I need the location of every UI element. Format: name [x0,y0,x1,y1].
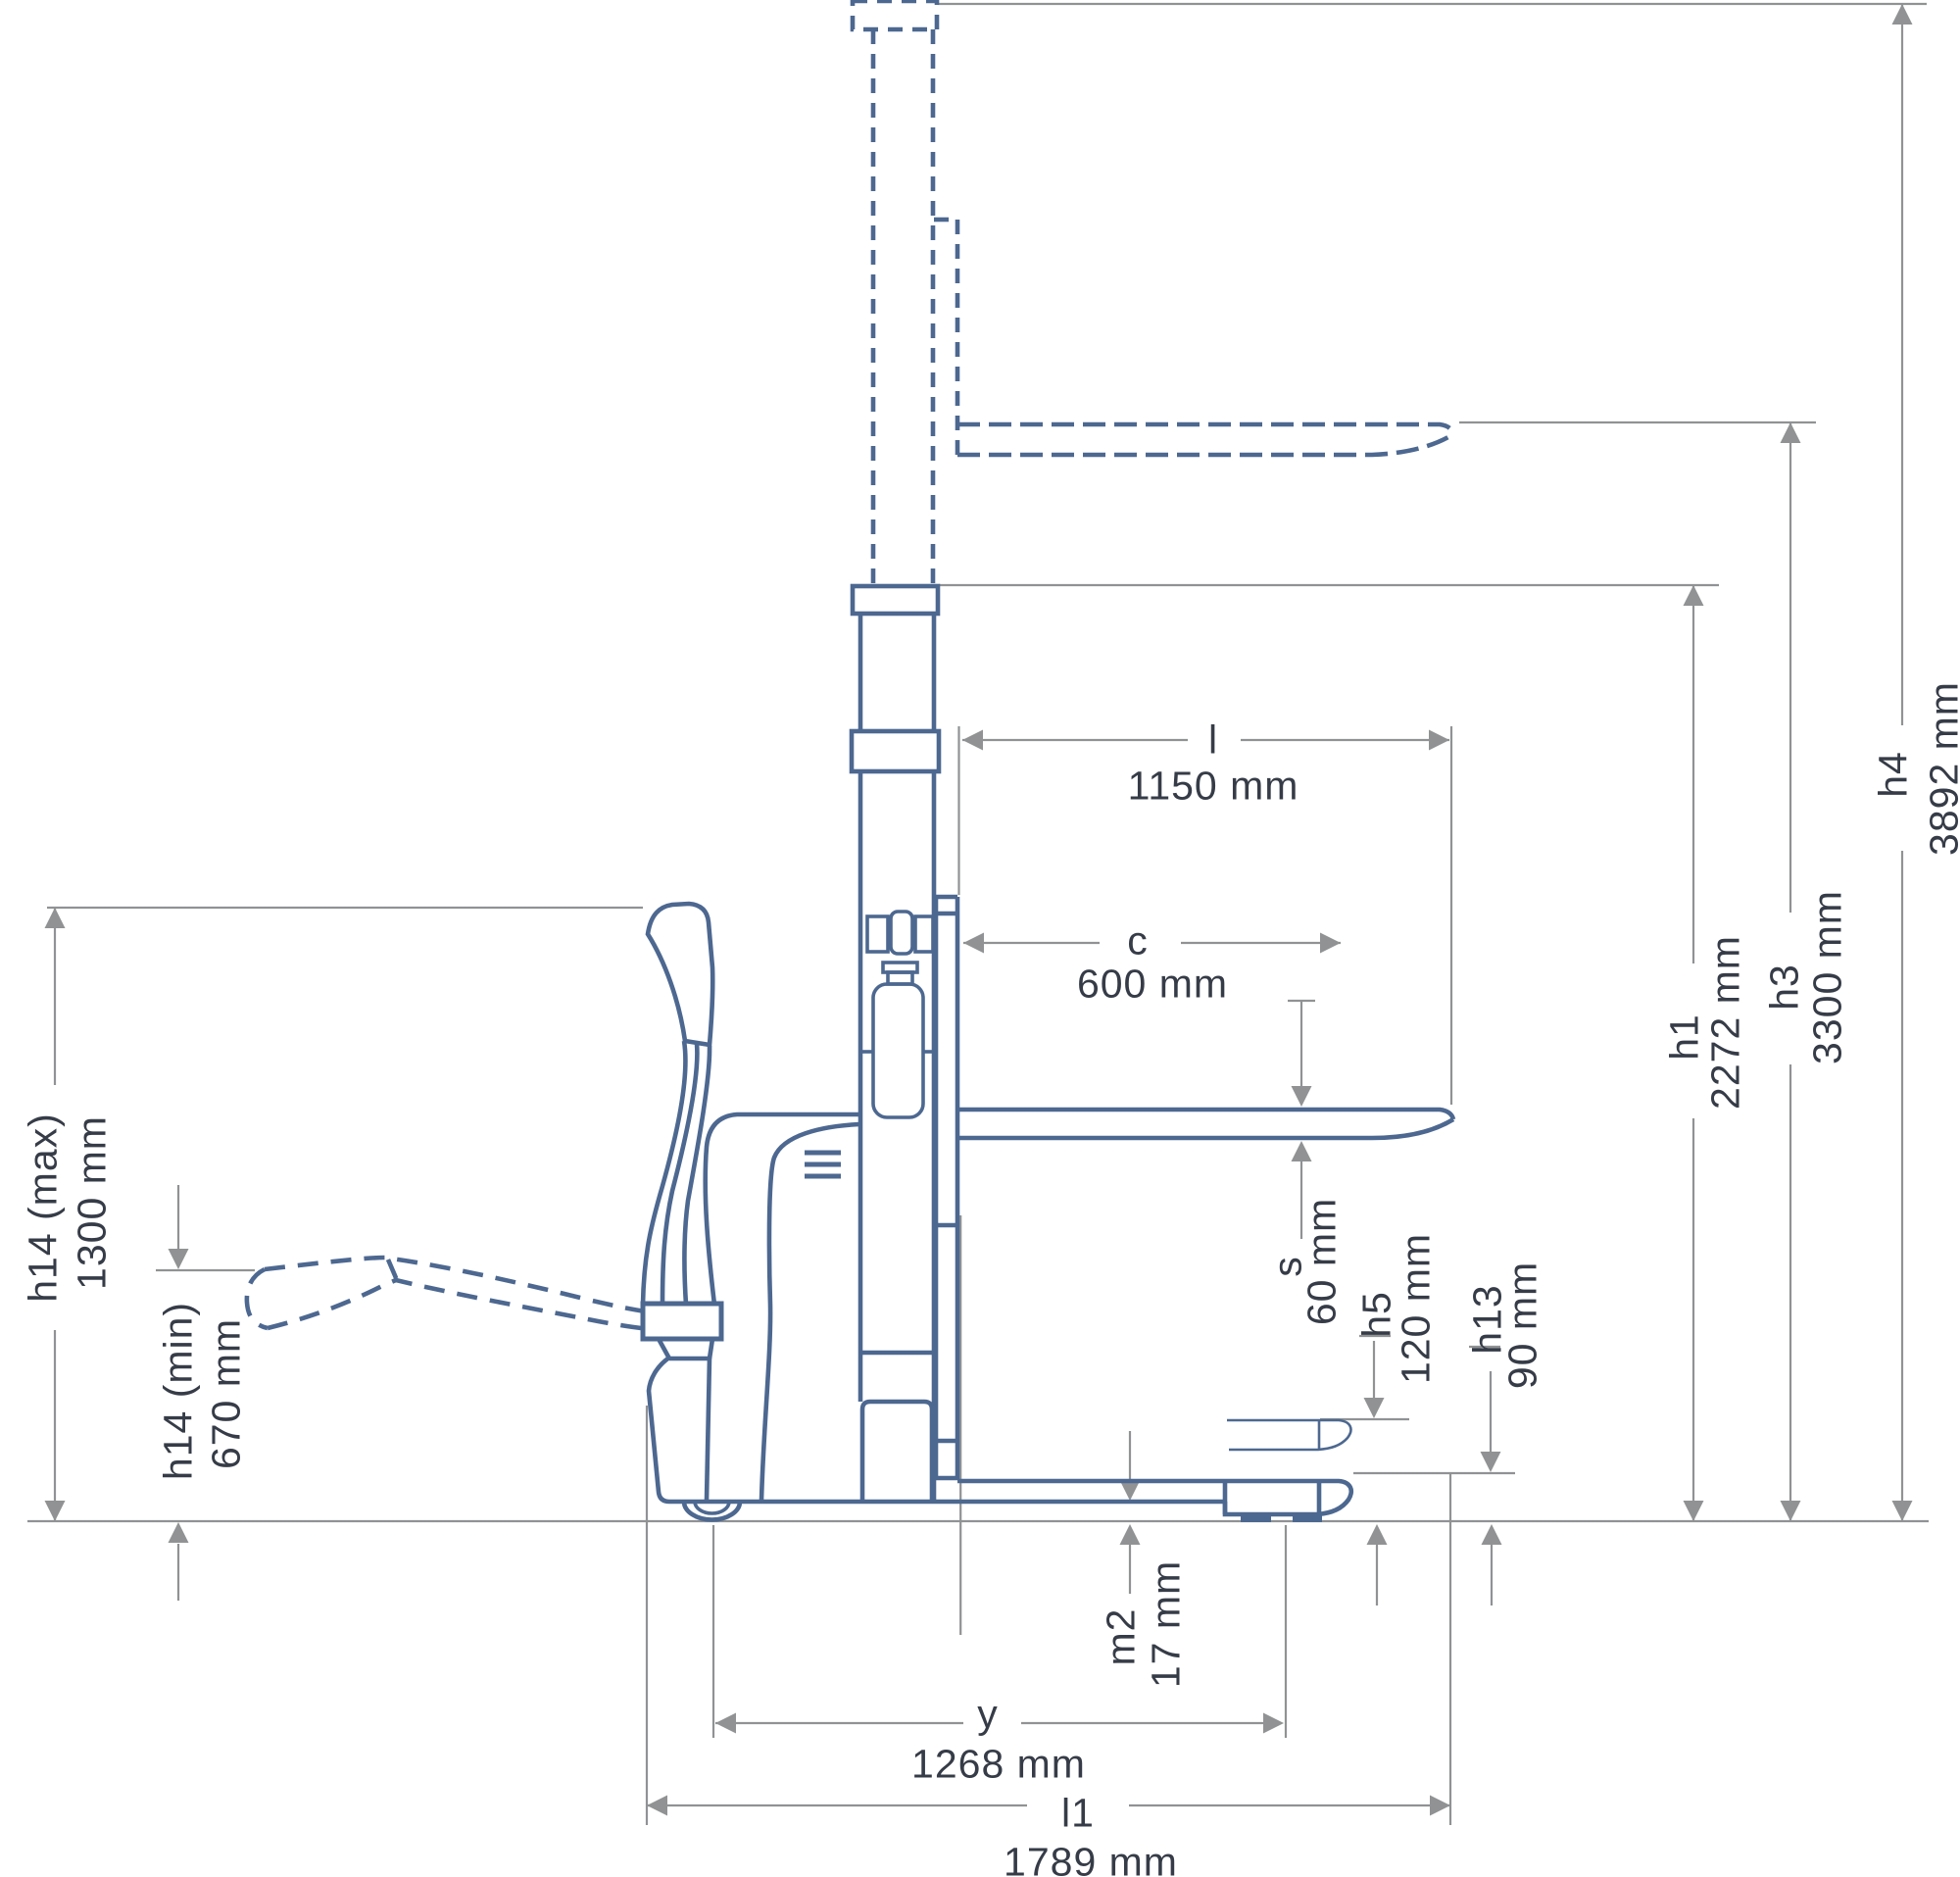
svg-text:120 mm: 120 mm [1393,1233,1438,1384]
svg-text:1300 mm: 1300 mm [69,1115,114,1290]
svg-text:h14 (max): h14 (max) [20,1112,65,1303]
svg-text:1268 mm: 1268 mm [911,1741,1086,1786]
svg-text:h3: h3 [1761,963,1806,1011]
svg-text:3300 mm: 3300 mm [1804,890,1849,1064]
svg-text:600 mm: 600 mm [1077,961,1228,1006]
svg-text:h14 (min): h14 (min) [155,1302,200,1480]
svg-text:1789 mm: 1789 mm [1004,1839,1178,1877]
svg-text:17 mm: 17 mm [1143,1560,1188,1688]
svg-text:2272 mm: 2272 mm [1702,935,1747,1110]
svg-text:l1: l1 [1061,1790,1095,1835]
svg-text:c: c [1127,917,1149,963]
svg-text:l: l [1208,716,1218,762]
svg-text:60 mm: 60 mm [1298,1198,1344,1325]
svg-text:3892 mm: 3892 mm [1921,681,1960,856]
svg-text:m2: m2 [1098,1608,1143,1666]
svg-text:y: y [977,1691,999,1736]
svg-text:1150 mm: 1150 mm [1128,763,1299,808]
svg-text:670 mm: 670 mm [203,1318,248,1469]
svg-text:h4: h4 [1870,751,1915,798]
svg-text:h1: h1 [1661,1013,1706,1061]
svg-text:90 mm: 90 mm [1499,1261,1544,1389]
